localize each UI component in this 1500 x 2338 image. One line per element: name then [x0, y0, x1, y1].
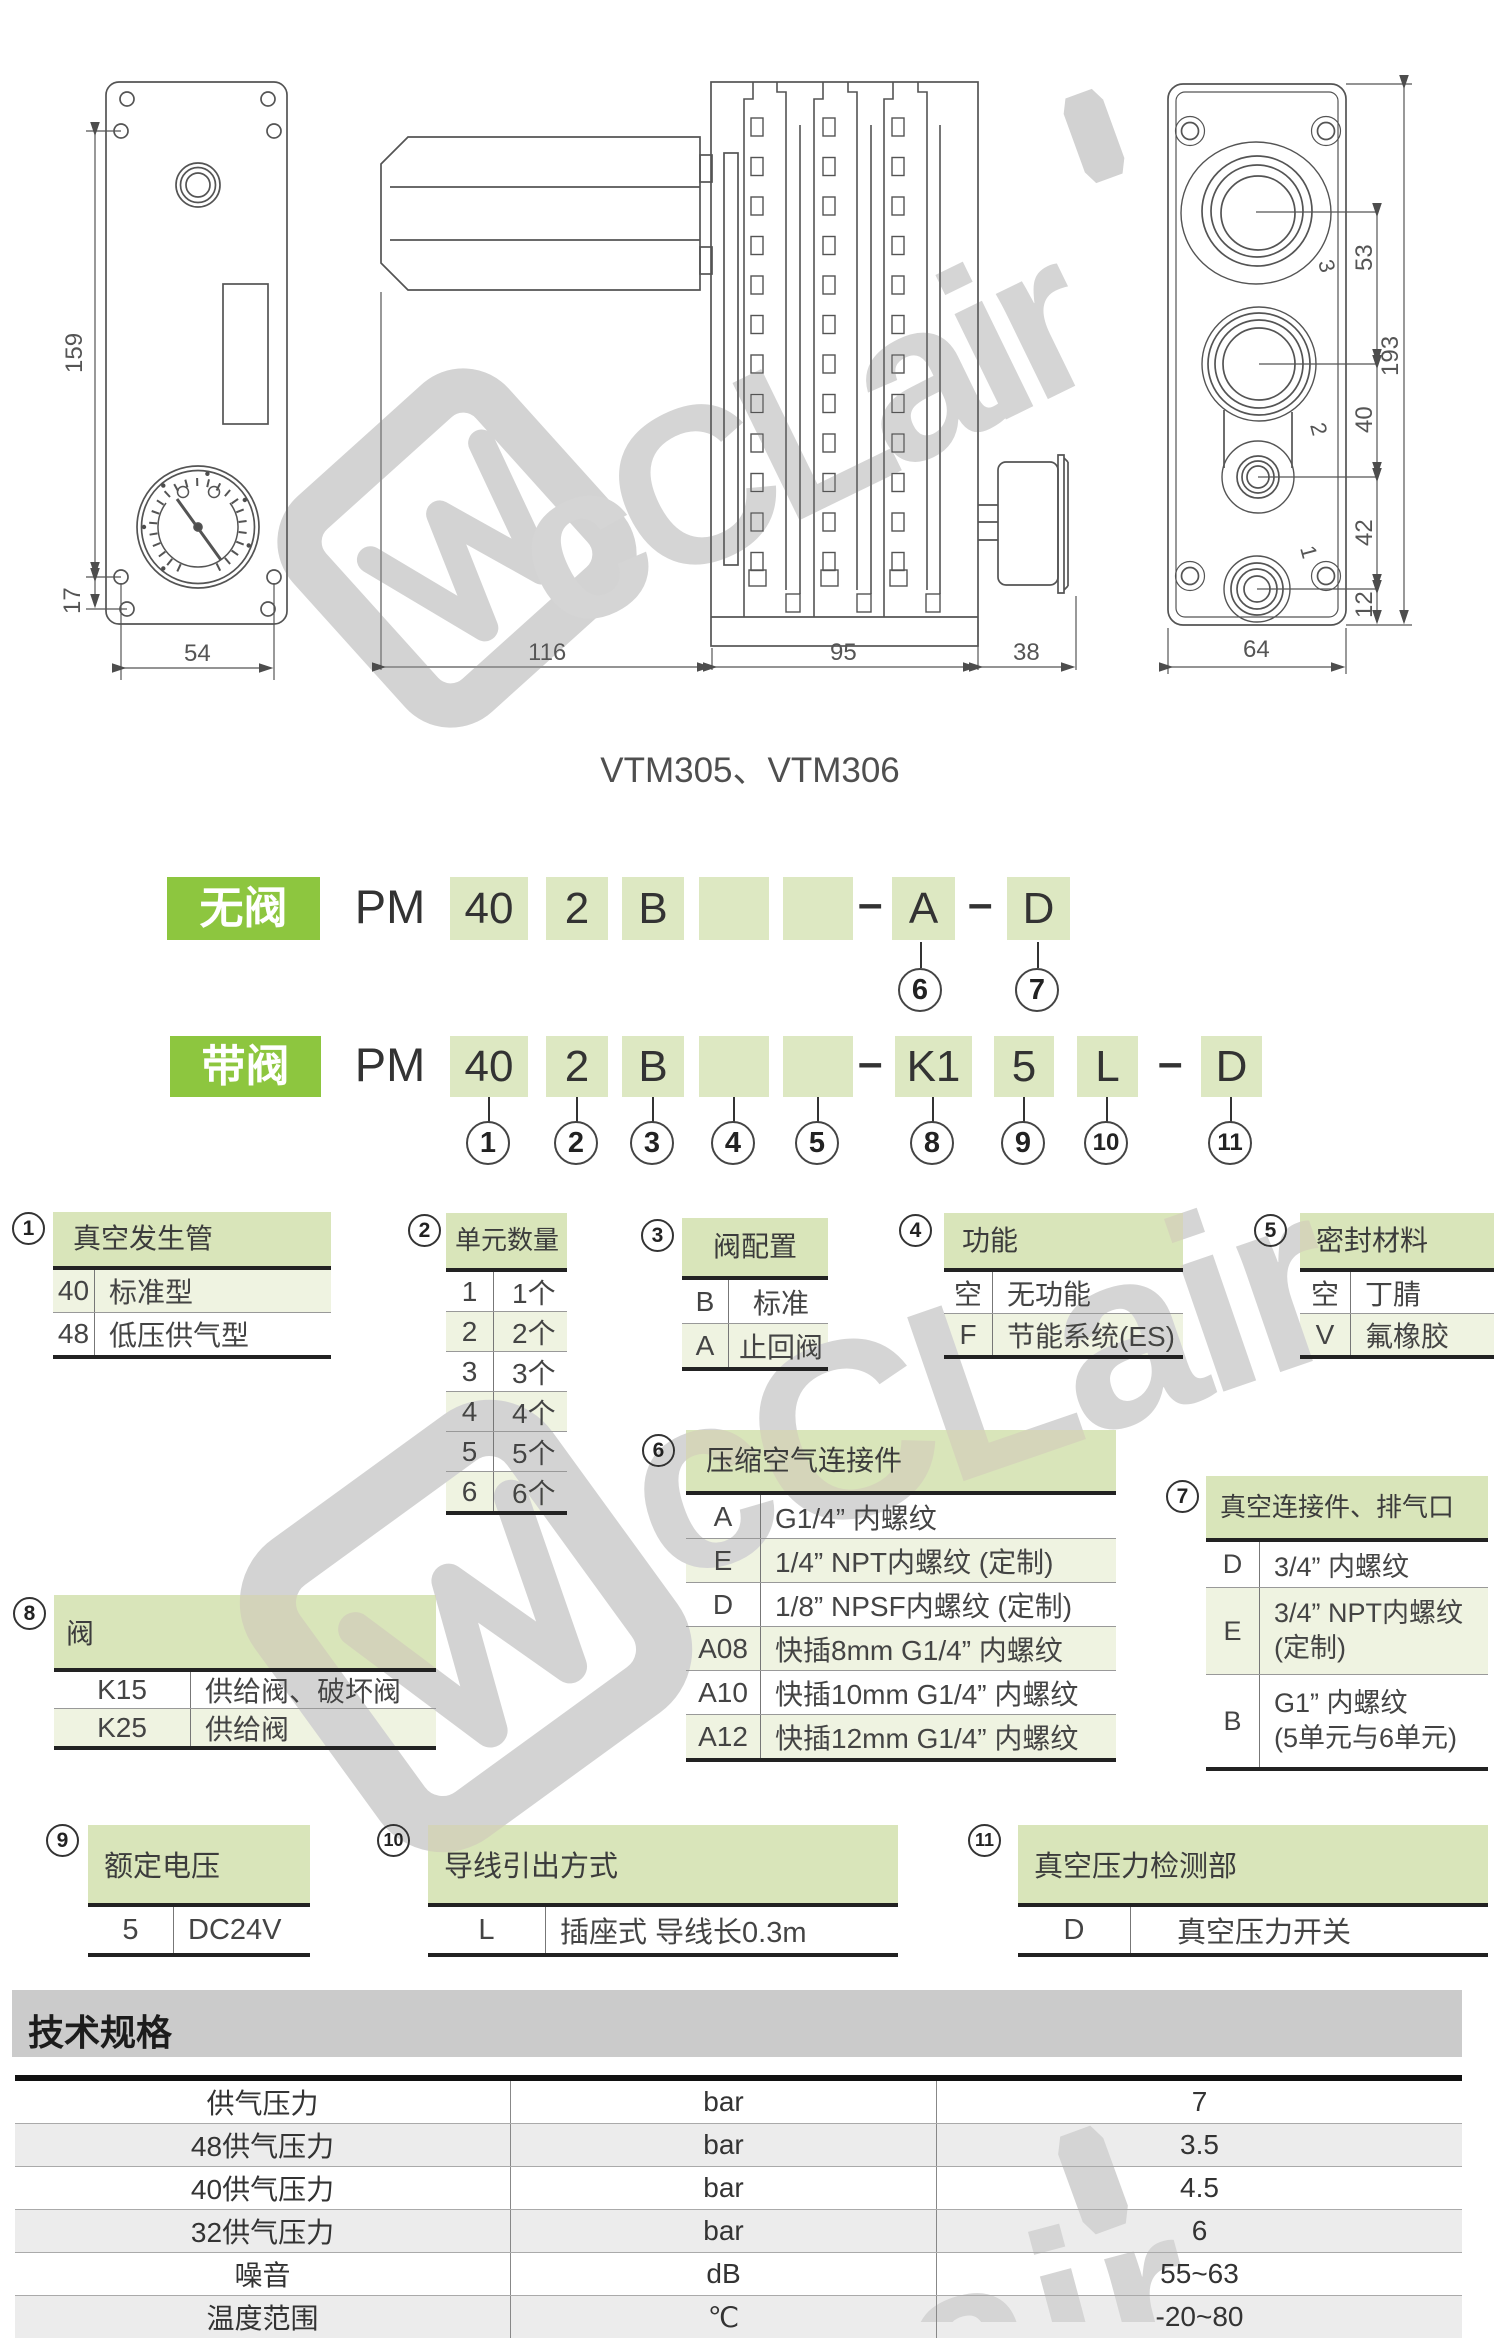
svg-text:40: 40	[1351, 406, 1378, 433]
svg-text:42: 42	[1351, 519, 1378, 546]
svg-text:3: 3	[1313, 257, 1340, 275]
svg-text:193: 193	[1377, 336, 1404, 376]
svg-text:116: 116	[528, 639, 566, 666]
svg-text:1: 1	[1295, 543, 1322, 561]
svg-text:64: 64	[1243, 636, 1270, 663]
svg-text:17: 17	[59, 587, 86, 614]
svg-text:159: 159	[61, 333, 88, 373]
svg-text:2: 2	[1305, 420, 1332, 438]
svg-text:12: 12	[1351, 591, 1378, 618]
svg-text:38: 38	[1013, 639, 1040, 666]
svg-text:54: 54	[184, 640, 211, 667]
svg-text:95: 95	[830, 639, 857, 666]
svg-text:53: 53	[1351, 244, 1378, 271]
